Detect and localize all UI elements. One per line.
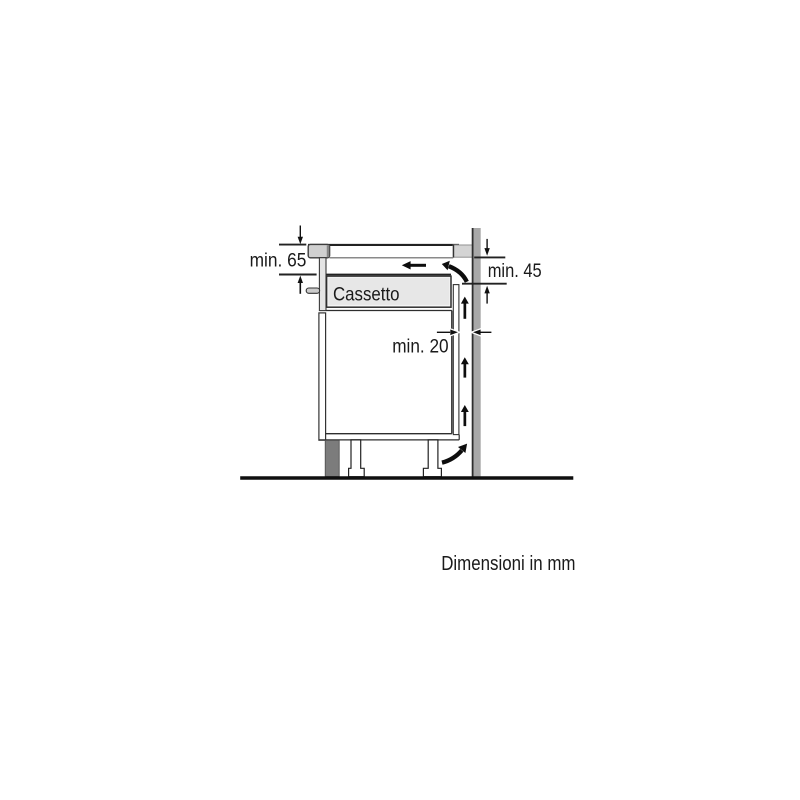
svg-text:min. 45: min. 45 — [488, 261, 542, 282]
svg-text:Cassetto: Cassetto — [333, 284, 400, 306]
svg-text:Dimensioni in mm: Dimensioni in mm — [441, 553, 575, 575]
svg-text:min. 65: min. 65 — [250, 251, 307, 272]
svg-text:min. 20: min. 20 — [392, 337, 448, 358]
